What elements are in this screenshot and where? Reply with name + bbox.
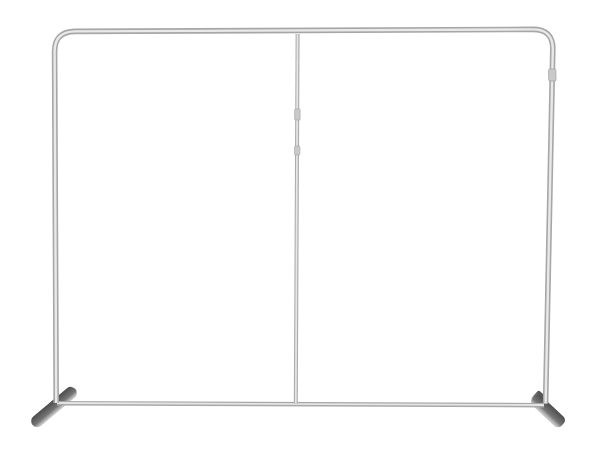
product-photo-canvas — [0, 0, 600, 450]
frame-tube-highlight — [55, 29, 553, 403]
display-frame-photo — [0, 0, 600, 450]
center-pole-joint-sleeve-lower — [295, 146, 300, 155]
center-pole-joint-sleeve-upper — [295, 109, 301, 120]
right-upright-joint-sleeve — [548, 69, 556, 81]
frame-tube-outline — [55, 29, 553, 403]
